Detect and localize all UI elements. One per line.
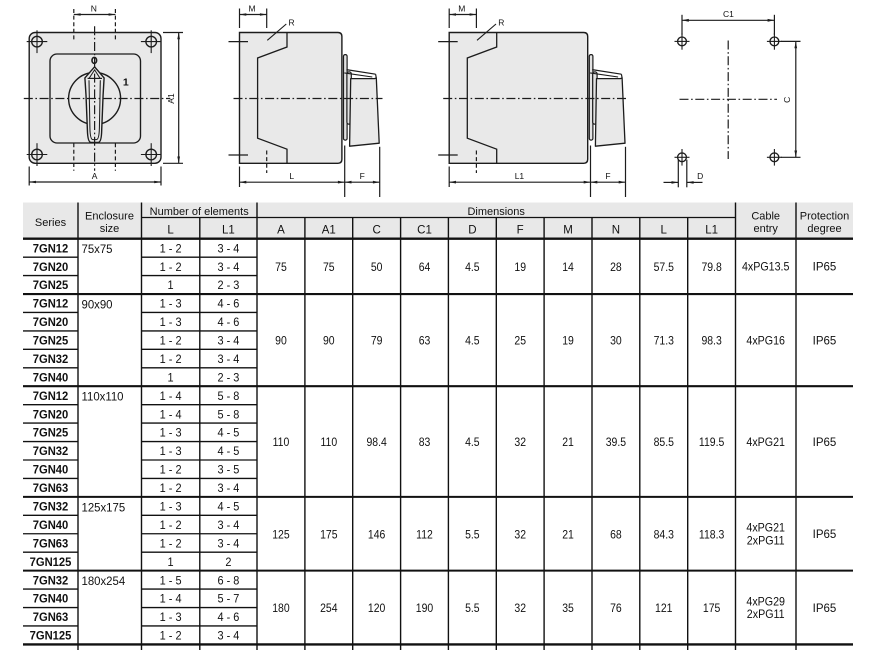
svg-text:4.5: 4.5	[465, 436, 480, 449]
svg-text:50: 50	[371, 261, 383, 274]
svg-text:Dimensions: Dimensions	[467, 206, 525, 218]
svg-text:14: 14	[562, 261, 574, 274]
svg-text:120: 120	[368, 602, 385, 615]
svg-text:4 - 6: 4 - 6	[217, 297, 239, 311]
svg-text:63: 63	[419, 335, 431, 348]
svg-text:1 - 4: 1 - 4	[160, 592, 182, 606]
svg-text:D: D	[697, 171, 703, 181]
svg-text:1 - 3: 1 - 3	[160, 316, 182, 330]
svg-text:7GN12: 7GN12	[33, 297, 69, 311]
svg-text:Series: Series	[35, 217, 67, 229]
svg-text:C: C	[782, 97, 792, 103]
svg-text:7GN125: 7GN125	[30, 629, 72, 643]
svg-text:110: 110	[273, 436, 290, 449]
svg-text:90: 90	[275, 335, 287, 348]
svg-text:1 - 2: 1 - 2	[160, 260, 182, 274]
svg-text:90: 90	[323, 335, 335, 348]
svg-text:76: 76	[610, 602, 622, 615]
svg-text:39.5: 39.5	[606, 436, 626, 449]
svg-text:7GN20: 7GN20	[33, 316, 69, 330]
svg-text:R: R	[289, 18, 295, 28]
svg-text:125: 125	[272, 529, 289, 542]
svg-text:N: N	[612, 225, 620, 237]
svg-text:32: 32	[514, 529, 526, 542]
svg-text:5 - 7: 5 - 7	[217, 592, 239, 606]
svg-text:7GN32: 7GN32	[33, 500, 69, 514]
svg-text:2xPG11: 2xPG11	[747, 609, 785, 621]
svg-text:L: L	[167, 225, 174, 237]
svg-text:1 - 3: 1 - 3	[160, 611, 182, 625]
svg-text:7GN25: 7GN25	[33, 426, 69, 440]
svg-text:3 - 4: 3 - 4	[217, 629, 239, 643]
svg-text:1 - 5: 1 - 5	[160, 574, 182, 588]
svg-text:A1: A1	[322, 225, 336, 237]
svg-text:4xPG13.5: 4xPG13.5	[742, 261, 790, 273]
svg-text:7GN20: 7GN20	[33, 260, 69, 274]
svg-text:175: 175	[320, 529, 337, 542]
svg-text:98.3: 98.3	[701, 335, 721, 348]
svg-text:IP65: IP65	[813, 529, 837, 541]
svg-text:85.5: 85.5	[654, 436, 674, 449]
svg-text:L1: L1	[515, 171, 525, 181]
svg-text:IP65: IP65	[813, 437, 837, 449]
svg-text:28: 28	[610, 261, 622, 274]
svg-text:254: 254	[320, 602, 338, 615]
svg-text:1 - 2: 1 - 2	[160, 242, 182, 256]
svg-text:68: 68	[610, 529, 622, 542]
svg-text:3 - 4: 3 - 4	[217, 352, 239, 366]
svg-text:83: 83	[419, 436, 431, 449]
svg-text:4xPG29: 4xPG29	[746, 596, 785, 608]
svg-text:71.3: 71.3	[654, 335, 674, 348]
svg-text:110x110: 110x110	[82, 390, 124, 403]
svg-text:1: 1	[168, 371, 174, 385]
svg-text:110: 110	[320, 436, 337, 449]
svg-text:32: 32	[514, 436, 526, 449]
svg-text:R: R	[498, 18, 504, 28]
svg-text:1 - 2: 1 - 2	[160, 463, 182, 477]
svg-text:1 - 2: 1 - 2	[160, 518, 182, 532]
svg-text:4 - 6: 4 - 6	[217, 316, 239, 330]
svg-text:IP65: IP65	[813, 335, 837, 347]
svg-text:180x254: 180x254	[82, 575, 126, 588]
svg-text:4 - 5: 4 - 5	[217, 445, 239, 459]
svg-text:4.5: 4.5	[465, 261, 480, 274]
svg-text:7GN25: 7GN25	[33, 334, 69, 348]
svg-text:M: M	[563, 225, 573, 237]
svg-text:1: 1	[123, 76, 129, 88]
svg-text:C1: C1	[417, 225, 432, 237]
svg-text:1 - 2: 1 - 2	[160, 334, 182, 348]
svg-text:1 - 4: 1 - 4	[160, 408, 182, 422]
svg-text:98.4: 98.4	[366, 436, 387, 449]
svg-text:3 - 4: 3 - 4	[217, 518, 239, 532]
svg-text:4 - 6: 4 - 6	[217, 611, 239, 625]
svg-text:180: 180	[272, 602, 289, 615]
svg-text:5 - 8: 5 - 8	[217, 389, 239, 403]
svg-text:1 - 2: 1 - 2	[160, 537, 182, 551]
svg-text:146: 146	[368, 529, 385, 542]
svg-text:7GN63: 7GN63	[33, 537, 69, 551]
svg-text:L1: L1	[222, 225, 235, 237]
svg-text:90x90: 90x90	[82, 298, 114, 311]
svg-text:C: C	[372, 225, 380, 237]
svg-text:M: M	[458, 4, 465, 14]
svg-text:1 - 4: 1 - 4	[160, 389, 182, 403]
svg-text:75: 75	[275, 261, 287, 274]
svg-text:A: A	[92, 171, 98, 181]
svg-text:Number of elements: Number of elements	[150, 206, 250, 218]
svg-text:121: 121	[655, 602, 672, 615]
svg-text:2: 2	[225, 555, 231, 569]
svg-text:IP65: IP65	[813, 603, 837, 615]
svg-text:4xPG21: 4xPG21	[746, 522, 785, 534]
svg-text:7GN40: 7GN40	[33, 371, 69, 385]
svg-text:7GN32: 7GN32	[33, 574, 69, 588]
svg-text:32: 32	[514, 602, 526, 615]
svg-text:7GN12: 7GN12	[33, 389, 69, 403]
svg-text:3 - 4: 3 - 4	[217, 537, 239, 551]
svg-text:A1: A1	[166, 93, 176, 104]
svg-text:30: 30	[610, 335, 622, 348]
svg-text:4 - 5: 4 - 5	[217, 426, 239, 440]
svg-text:5.5: 5.5	[465, 602, 480, 615]
svg-text:3 - 4: 3 - 4	[217, 334, 239, 348]
svg-text:7GN63: 7GN63	[33, 482, 69, 496]
svg-text:119.5: 119.5	[699, 436, 724, 449]
svg-text:84.3: 84.3	[654, 529, 674, 542]
svg-text:79: 79	[371, 335, 383, 348]
svg-text:1 - 3: 1 - 3	[160, 426, 182, 440]
svg-text:64: 64	[419, 261, 431, 274]
svg-text:7GN40: 7GN40	[33, 592, 69, 606]
svg-text:1 - 3: 1 - 3	[160, 297, 182, 311]
svg-text:N: N	[91, 4, 97, 14]
svg-text:7GN63: 7GN63	[33, 611, 69, 625]
svg-text:3 - 5: 3 - 5	[217, 463, 239, 477]
svg-text:2 - 3: 2 - 3	[217, 371, 239, 385]
svg-text:Protection: Protection	[800, 211, 850, 223]
svg-text:1: 1	[168, 555, 174, 569]
svg-text:79.8: 79.8	[701, 261, 721, 274]
svg-text:2 - 3: 2 - 3	[217, 279, 239, 293]
svg-text:3 - 4: 3 - 4	[217, 260, 239, 274]
svg-text:5 - 8: 5 - 8	[217, 408, 239, 422]
svg-text:21: 21	[562, 436, 574, 449]
svg-text:C1: C1	[723, 9, 734, 19]
svg-text:25: 25	[514, 335, 526, 348]
svg-text:1 - 2: 1 - 2	[160, 629, 182, 643]
svg-text:19: 19	[514, 261, 526, 274]
svg-text:7GN12: 7GN12	[33, 242, 69, 256]
svg-text:19: 19	[562, 335, 574, 348]
svg-text:1 - 2: 1 - 2	[160, 352, 182, 366]
svg-text:F: F	[517, 225, 524, 237]
svg-text:1 - 3: 1 - 3	[160, 445, 182, 459]
svg-text:F: F	[605, 171, 610, 181]
svg-text:4xPG16: 4xPG16	[746, 335, 785, 347]
svg-text:118.3: 118.3	[699, 529, 724, 542]
svg-text:1 - 2: 1 - 2	[160, 481, 182, 495]
svg-text:4.5: 4.5	[465, 335, 480, 348]
svg-text:21: 21	[562, 529, 574, 542]
svg-text:7GN32: 7GN32	[33, 445, 69, 459]
svg-text:6 - 8: 6 - 8	[217, 574, 239, 588]
svg-text:A: A	[277, 225, 285, 237]
svg-text:IP65: IP65	[813, 262, 837, 274]
svg-text:7GN20: 7GN20	[33, 408, 69, 422]
svg-text:Enclosure: Enclosure	[85, 211, 134, 223]
svg-text:L: L	[661, 225, 668, 237]
svg-text:7GN32: 7GN32	[33, 353, 69, 367]
svg-text:L: L	[289, 171, 294, 181]
svg-text:175: 175	[703, 602, 720, 615]
svg-text:3 - 4: 3 - 4	[217, 242, 239, 256]
svg-text:190: 190	[416, 602, 433, 615]
svg-text:7GN40: 7GN40	[33, 463, 69, 477]
svg-text:7GN125: 7GN125	[30, 555, 72, 569]
svg-text:35: 35	[562, 602, 574, 615]
svg-text:Cable: Cable	[751, 211, 780, 223]
svg-text:75: 75	[323, 261, 335, 274]
svg-text:F: F	[360, 171, 365, 181]
svg-text:M: M	[249, 4, 256, 14]
svg-text:125x175: 125x175	[82, 501, 126, 514]
svg-text:3 - 4: 3 - 4	[217, 481, 239, 495]
svg-text:7GN40: 7GN40	[33, 519, 69, 533]
svg-text:2xPG11: 2xPG11	[747, 535, 785, 547]
svg-text:degree: degree	[807, 223, 841, 235]
svg-text:112: 112	[416, 529, 433, 542]
svg-text:4 - 5: 4 - 5	[217, 500, 239, 514]
svg-text:7GN25: 7GN25	[33, 279, 69, 293]
svg-text:L1: L1	[705, 225, 718, 237]
svg-text:4xPG21: 4xPG21	[746, 437, 785, 449]
svg-text:5.5: 5.5	[465, 529, 480, 542]
svg-text:size: size	[100, 223, 120, 235]
svg-text:1: 1	[168, 279, 174, 293]
svg-text:1 - 3: 1 - 3	[160, 500, 182, 514]
svg-text:57.5: 57.5	[654, 261, 674, 274]
svg-text:75x75: 75x75	[82, 243, 114, 256]
svg-text:entry: entry	[753, 223, 778, 235]
svg-text:D: D	[468, 225, 476, 237]
